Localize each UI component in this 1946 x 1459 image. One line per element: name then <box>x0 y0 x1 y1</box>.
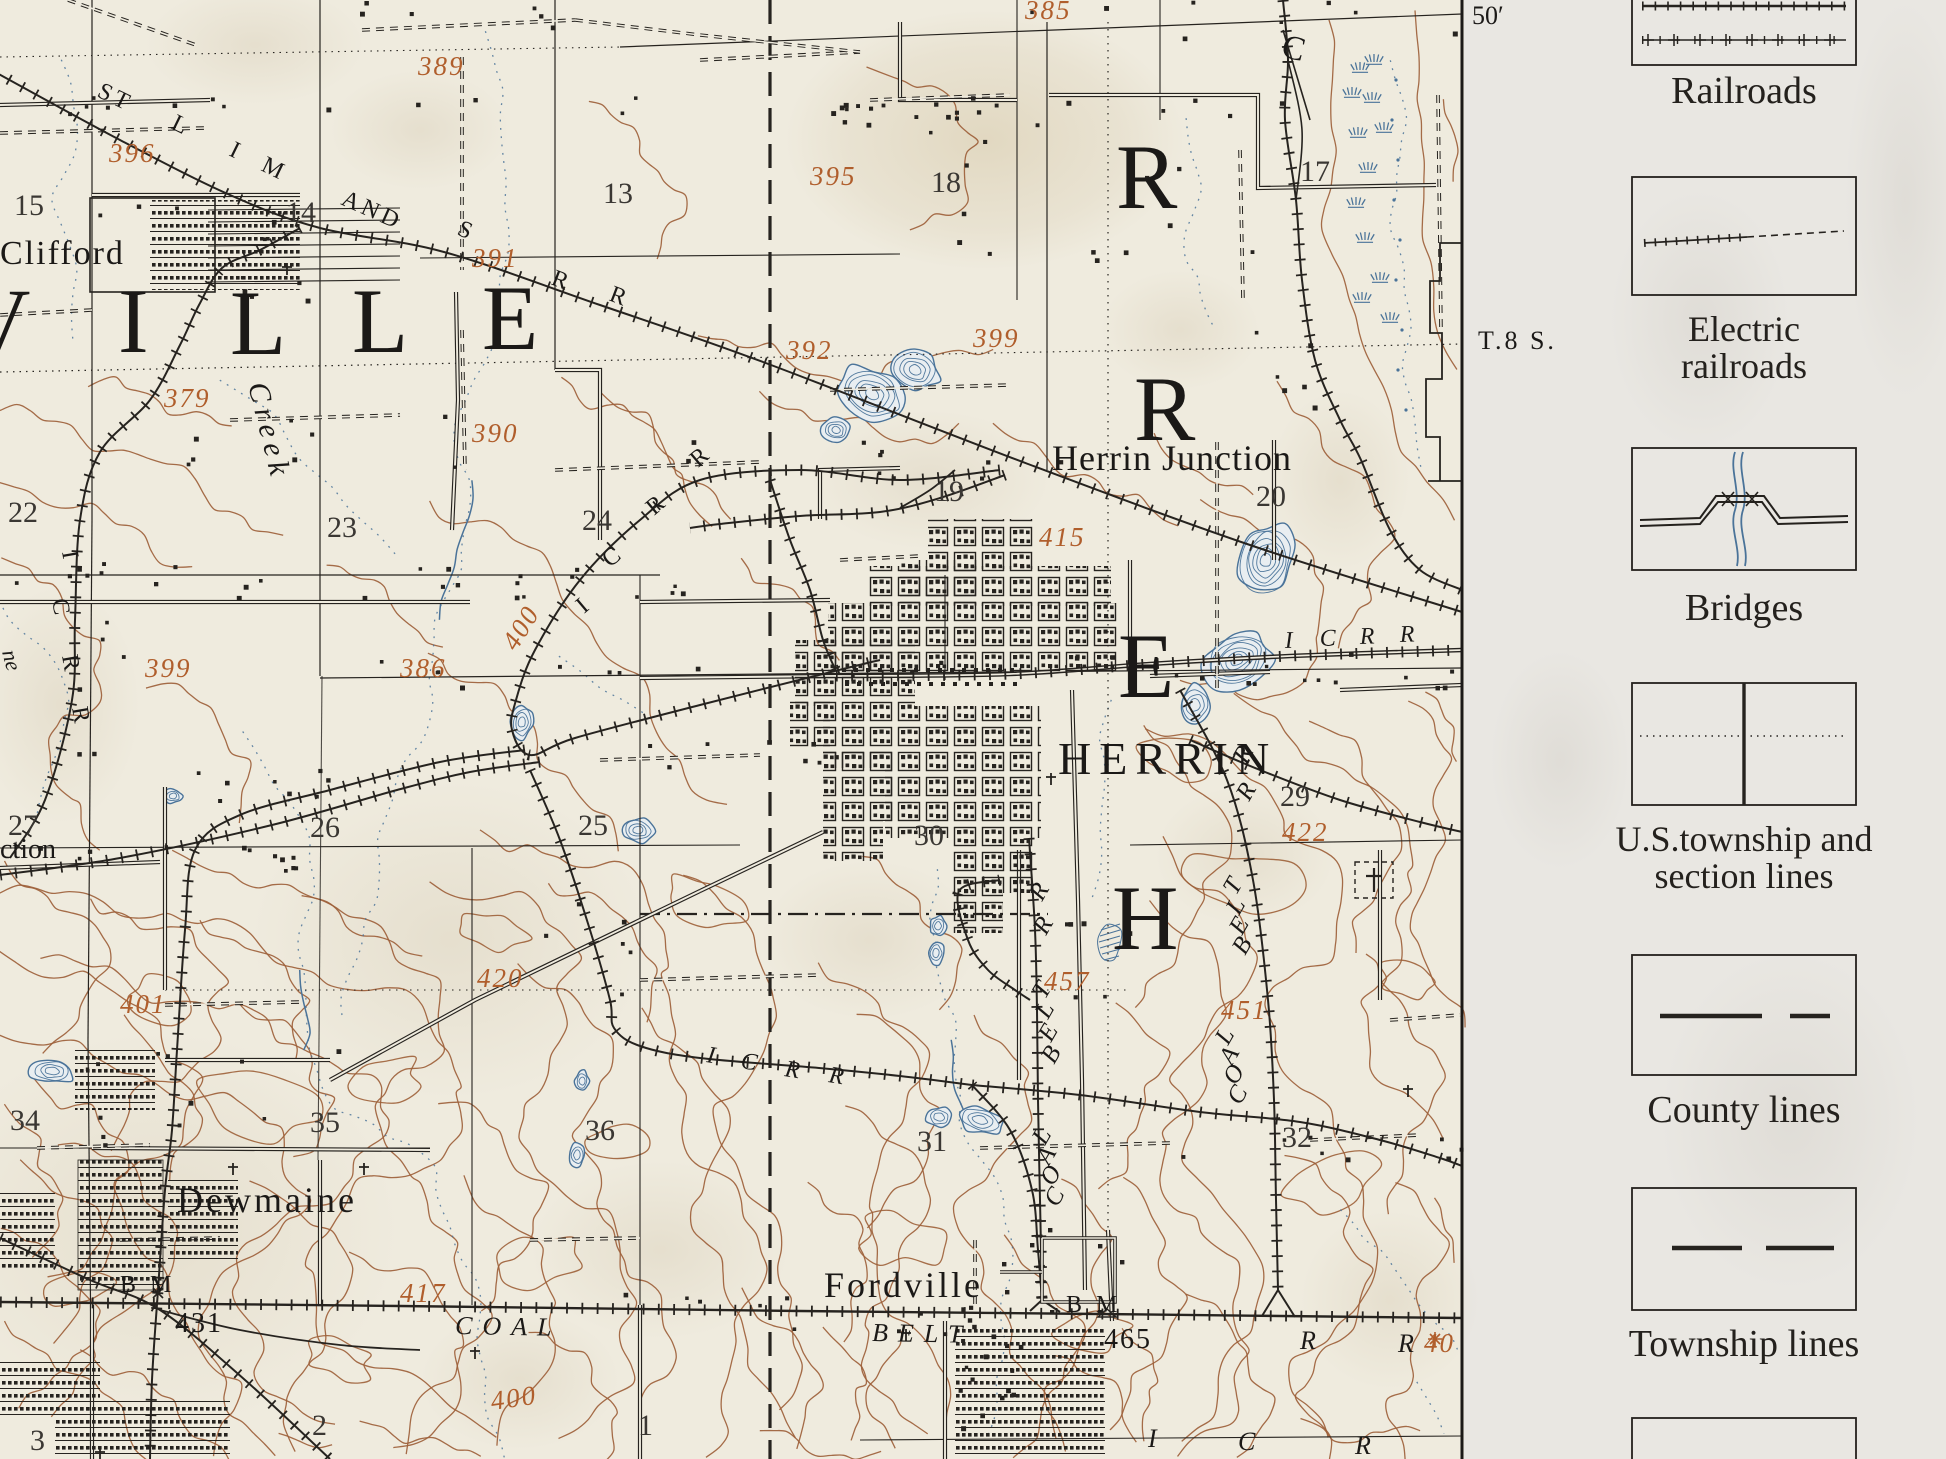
svg-text:T.8 S.: T.8 S. <box>1478 326 1557 355</box>
svg-text:V: V <box>0 270 30 372</box>
svg-text:1: 1 <box>638 1409 653 1442</box>
svg-text:13: 13 <box>603 177 633 210</box>
svg-text:14: 14 <box>286 196 316 229</box>
svg-text:Bridges: Bridges <box>1685 587 1803 629</box>
svg-text:U.S.township and: U.S.township and <box>1615 819 1872 859</box>
svg-text:3: 3 <box>30 1424 45 1457</box>
svg-text:L: L <box>352 270 408 372</box>
svg-text:30: 30 <box>914 819 944 852</box>
svg-text:422: 422 <box>1282 817 1329 847</box>
svg-text:Fordville: Fordville <box>824 1265 983 1305</box>
svg-text:400: 400 <box>489 1380 539 1416</box>
svg-text:415: 415 <box>1039 522 1086 552</box>
svg-text:I: I <box>1147 1424 1158 1453</box>
svg-text:40: 40 <box>1424 1328 1455 1358</box>
svg-text:BELT: BELT <box>872 1318 973 1349</box>
svg-text:H: H <box>1112 867 1178 969</box>
svg-text:27: 27 <box>8 809 38 842</box>
svg-text:32: 32 <box>1282 1121 1312 1154</box>
svg-text:15: 15 <box>14 189 44 222</box>
svg-text:399: 399 <box>972 323 1020 353</box>
svg-text:25: 25 <box>578 809 608 842</box>
svg-text:31: 31 <box>917 1125 947 1158</box>
svg-text:389: 389 <box>417 51 465 81</box>
svg-text:23: 23 <box>327 511 357 544</box>
svg-text:420: 420 <box>477 963 524 993</box>
svg-text:Herrin Junction: Herrin Junction <box>1052 438 1292 478</box>
svg-text:465: 465 <box>1104 1324 1152 1355</box>
svg-text:E: E <box>1118 615 1174 717</box>
svg-text:392: 392 <box>785 335 833 365</box>
svg-text:Dewmaine: Dewmaine <box>177 1180 357 1220</box>
svg-text:Township lines: Township lines <box>1629 1323 1860 1365</box>
svg-text:R: R <box>1358 623 1375 650</box>
svg-text:Clifford: Clifford <box>0 235 125 272</box>
svg-text:19: 19 <box>934 475 964 508</box>
svg-text:L: L <box>230 272 286 374</box>
svg-text:20: 20 <box>1256 480 1286 513</box>
svg-text:B M: B M <box>120 1272 175 1298</box>
svg-text:379: 379 <box>163 383 211 413</box>
svg-text:401: 401 <box>120 989 167 1019</box>
svg-text:22: 22 <box>8 496 38 529</box>
svg-text:29: 29 <box>1280 780 1310 813</box>
svg-text:18: 18 <box>931 166 961 199</box>
svg-text:24: 24 <box>582 504 612 537</box>
svg-text:railroads: railroads <box>1681 346 1807 386</box>
svg-text:E: E <box>482 267 538 369</box>
svg-text:431: 431 <box>175 1308 223 1339</box>
svg-text:Electric: Electric <box>1688 309 1800 349</box>
svg-text:Railroads: Railroads <box>1671 70 1817 112</box>
svg-text:386: 386 <box>399 653 447 683</box>
svg-text:County lines: County lines <box>1647 1089 1840 1131</box>
svg-text:34: 34 <box>10 1104 40 1137</box>
svg-text:R: R <box>1398 621 1415 648</box>
svg-text:I: I <box>118 270 149 372</box>
svg-text:395: 395 <box>809 161 857 191</box>
svg-text:36: 36 <box>585 1114 615 1147</box>
svg-text:COAL: COAL <box>455 1311 562 1342</box>
svg-text:391: 391 <box>471 243 519 273</box>
svg-text:417: 417 <box>400 1278 447 1308</box>
svg-text:R: R <box>1354 1431 1371 1459</box>
svg-text:50′: 50′ <box>1472 1 1504 30</box>
svg-text:R: R <box>1299 1326 1316 1355</box>
svg-text:396: 396 <box>108 138 156 168</box>
svg-text:C: C <box>1319 625 1337 652</box>
svg-text:390: 390 <box>471 418 519 448</box>
svg-text:B M: B M <box>1066 1292 1121 1318</box>
svg-text:section lines: section lines <box>1655 856 1834 896</box>
svg-text:R: R <box>1116 126 1178 228</box>
svg-text:451: 451 <box>1221 995 1268 1025</box>
svg-text:385: 385 <box>1024 0 1072 25</box>
svg-text:26: 26 <box>310 811 340 844</box>
svg-text:R: R <box>1397 1329 1414 1358</box>
svg-text:2: 2 <box>312 1409 327 1442</box>
svg-text:C: C <box>1238 1427 1256 1456</box>
svg-text:399: 399 <box>144 653 192 683</box>
svg-text:35: 35 <box>310 1106 340 1139</box>
svg-text:17: 17 <box>1300 155 1330 188</box>
